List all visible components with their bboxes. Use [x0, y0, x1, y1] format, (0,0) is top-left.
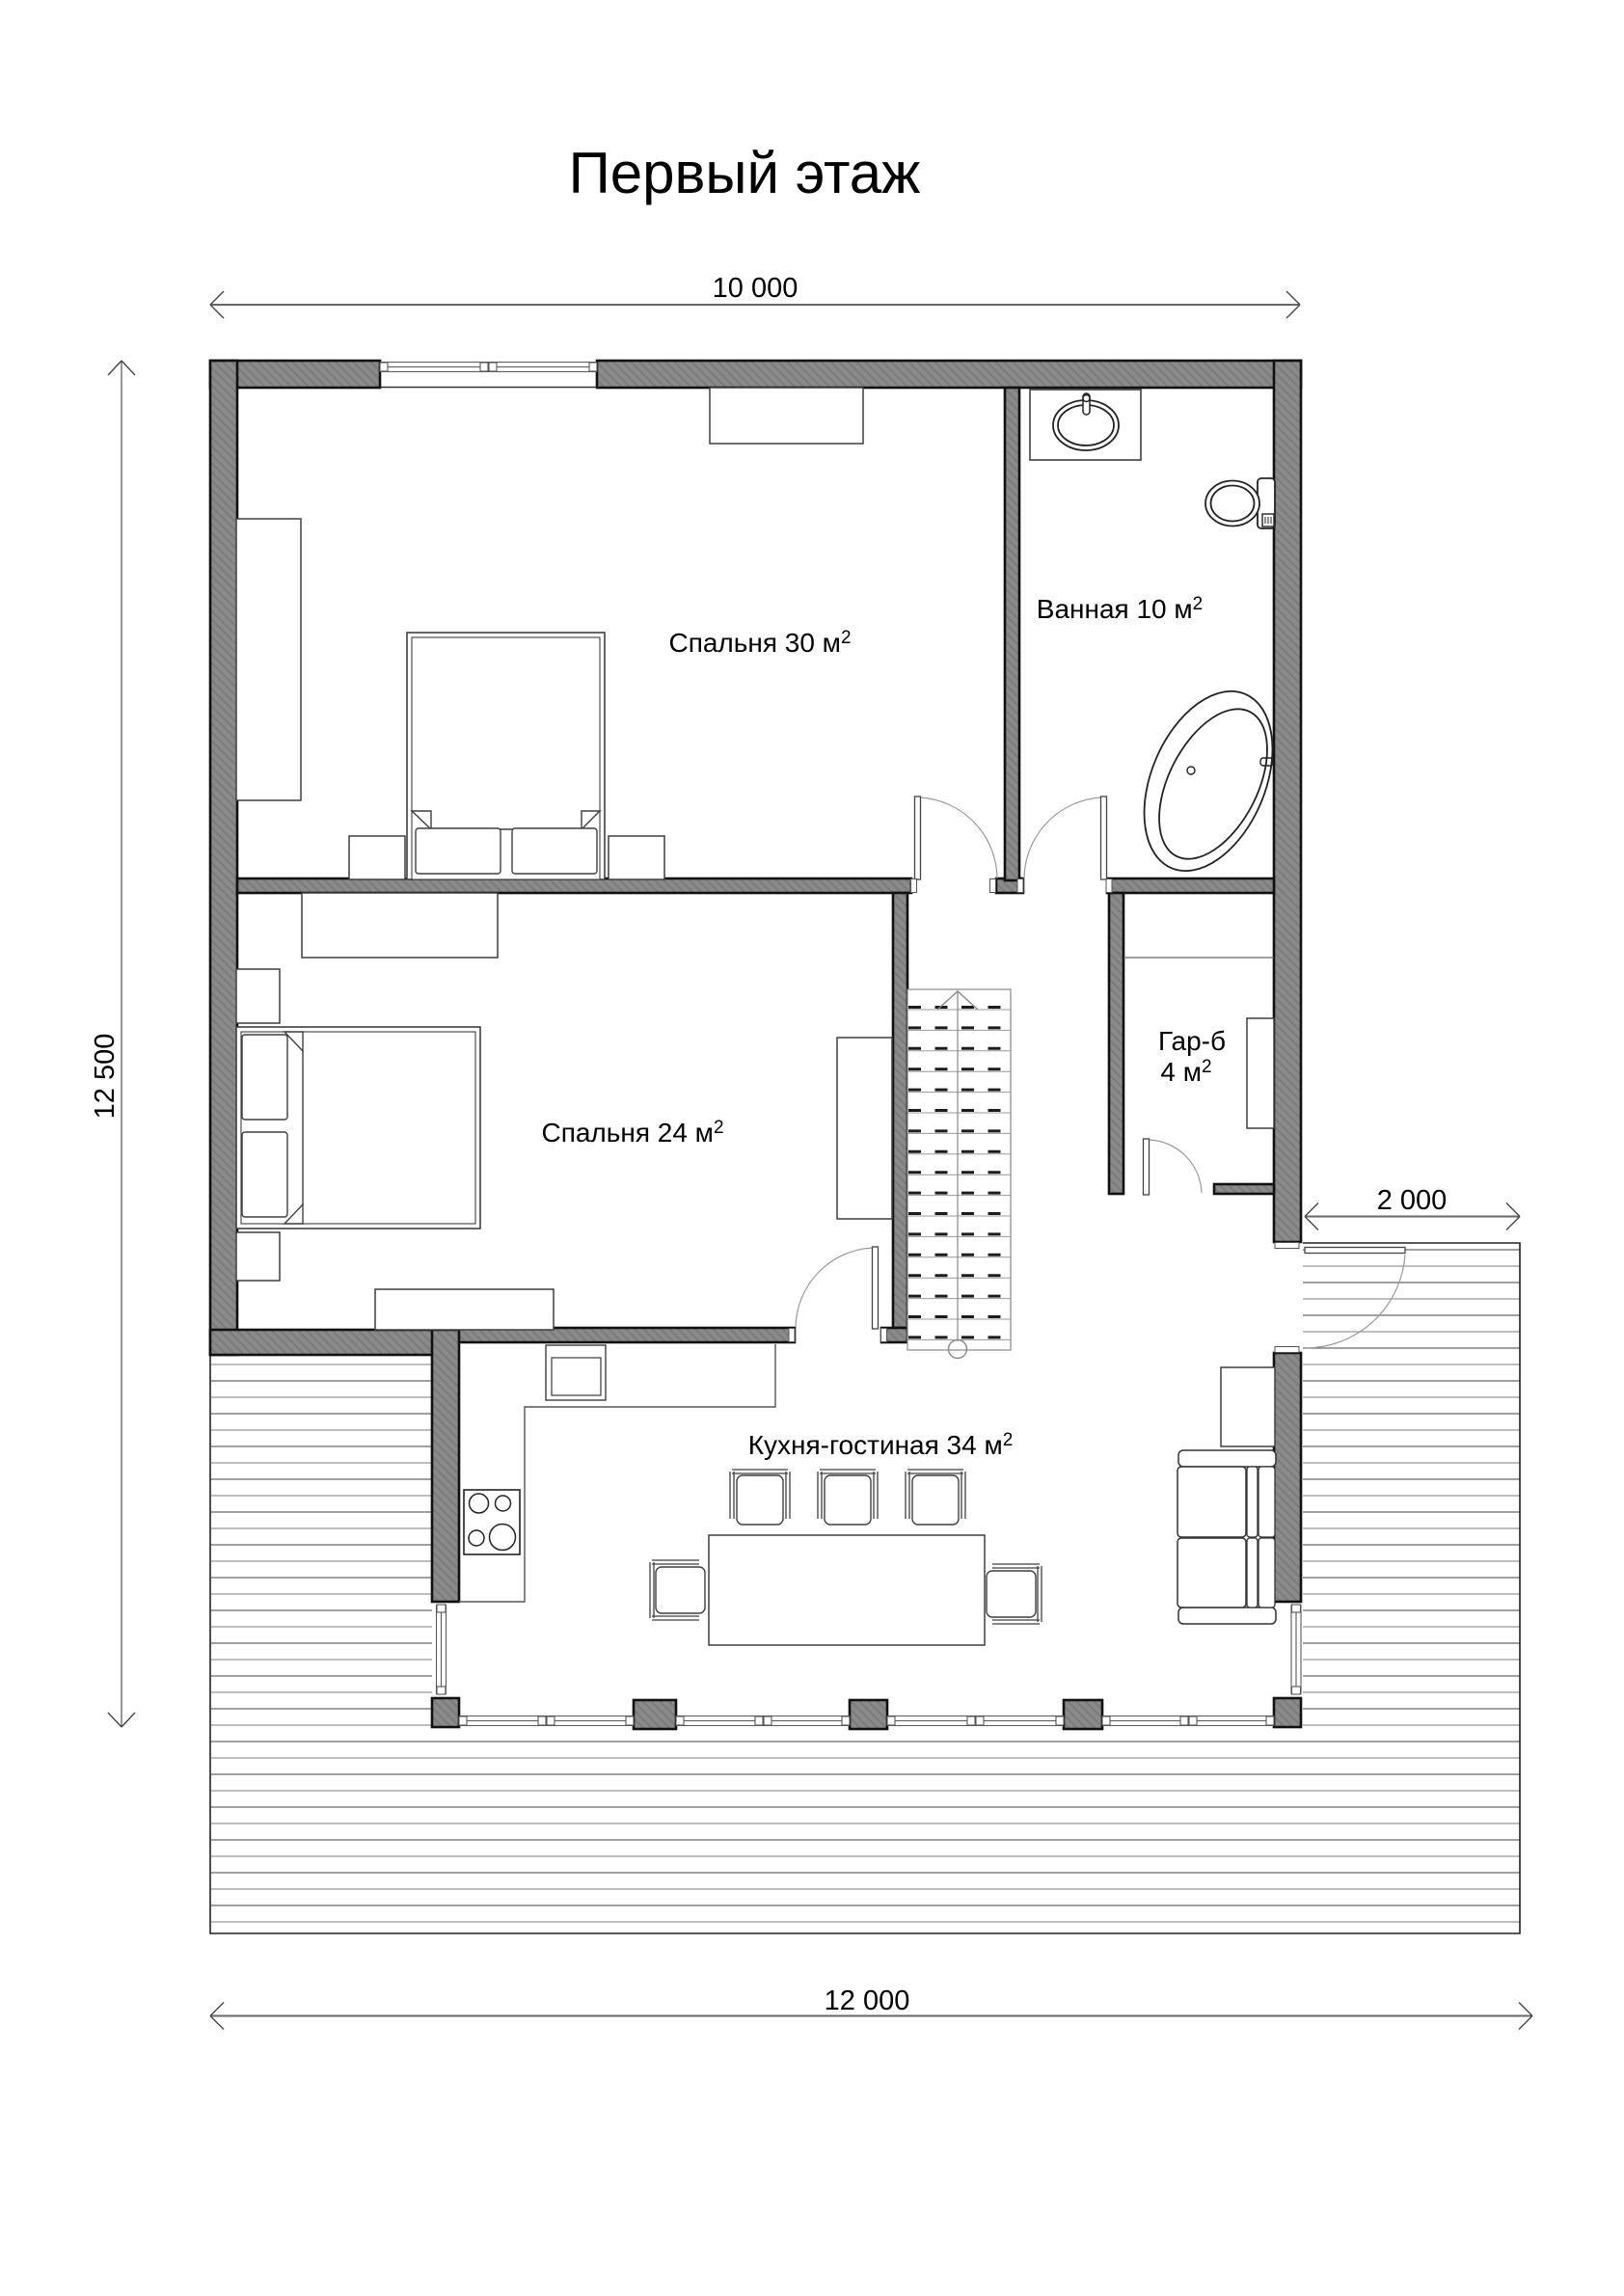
svg-text:Спальня 30 м2: Спальня 30 м2 — [668, 628, 851, 658]
svg-text:Ванная 10 м2: Ванная 10 м2 — [1037, 594, 1203, 624]
svg-text:12 500: 12 500 — [90, 1034, 121, 1120]
svg-text:Гар-б: Гар-б — [1158, 1026, 1226, 1056]
svg-text:10 000: 10 000 — [713, 273, 798, 304]
svg-text:Первый этаж: Первый этаж — [569, 141, 921, 205]
svg-text:Спальня 24 м2: Спальня 24 м2 — [541, 1118, 723, 1148]
svg-text:Кухня-гостиная 34 м2: Кухня-гостиная 34 м2 — [748, 1430, 1014, 1460]
svg-text:2 000: 2 000 — [1377, 1185, 1448, 1216]
svg-text:12 000: 12 000 — [825, 1985, 910, 2016]
